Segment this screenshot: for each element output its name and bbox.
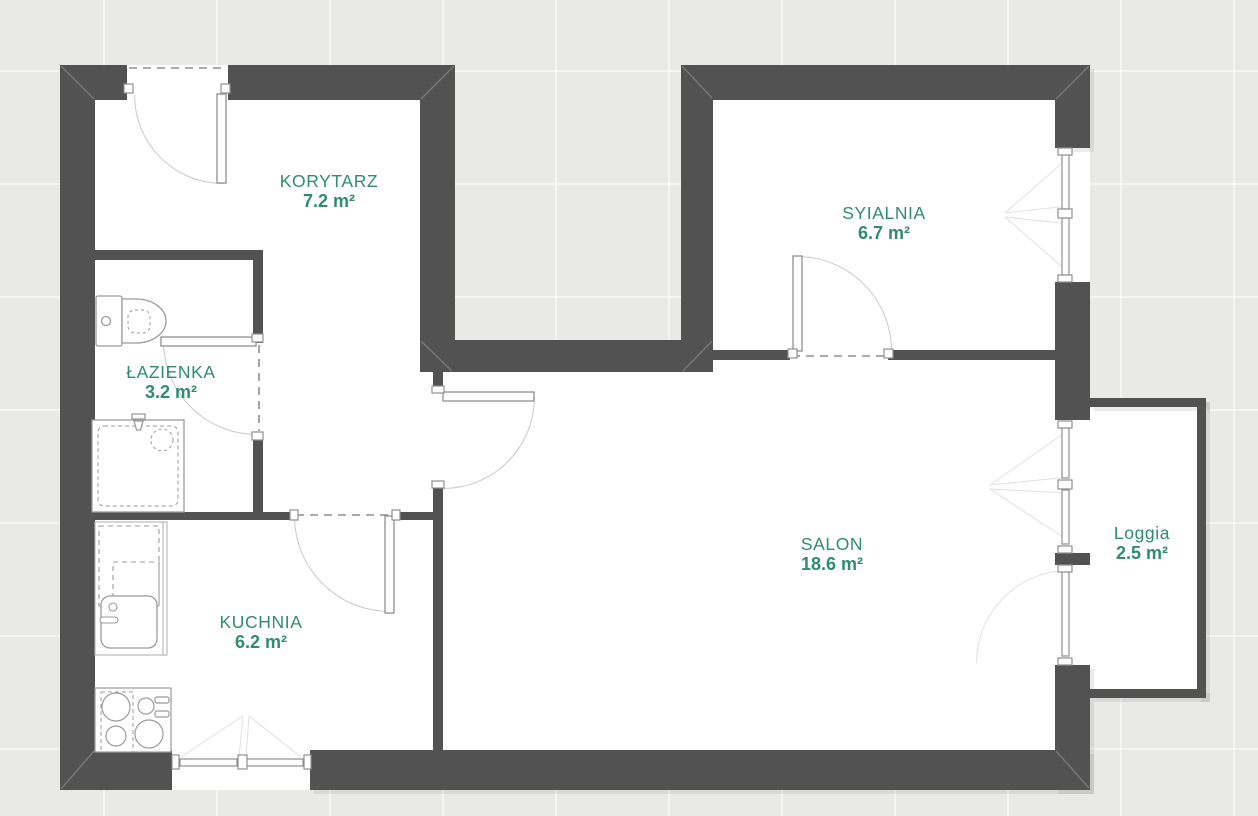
kitchen-window-casement-lines — [181, 716, 301, 757]
room-name: ŁAZIENKA — [126, 362, 215, 382]
room-label-lazienka: ŁAZIENKA 3.2 m² — [126, 362, 215, 402]
bedroom-door-leaf — [793, 256, 802, 351]
bathroom-door-leaf — [161, 337, 256, 346]
shower-icon — [92, 414, 184, 512]
room-name: SYIALNIA — [842, 203, 926, 223]
salon-window — [990, 421, 1072, 553]
room-label-korytarz: KORYTARZ 7.2 m² — [280, 171, 378, 211]
stove-icon — [95, 688, 171, 752]
room-name: KUCHNIA — [220, 612, 303, 632]
door-stops — [124, 84, 893, 520]
room-area: 6.2 m² — [220, 632, 303, 652]
room-label-salon: SALON 18.6 m² — [801, 534, 863, 574]
toilet-icon — [96, 296, 166, 346]
kitchen-counter — [95, 522, 167, 655]
room-label-loggia: Loggia 2.5 m² — [1114, 523, 1170, 563]
room-area: 7.2 m² — [280, 191, 378, 211]
salon-door-leaf — [443, 392, 534, 401]
bedroom-window — [1005, 148, 1072, 282]
door-leaves — [161, 94, 802, 613]
room-name: KORYTARZ — [280, 171, 378, 191]
entrance-door-leaf — [217, 94, 226, 183]
floor-plan: KORYTARZ 7.2 m² SYIALNIA 6.7 m² ŁAZIENKA… — [0, 0, 1258, 816]
room-area: 2.5 m² — [1114, 543, 1170, 563]
kitchen-sink-icon — [100, 596, 157, 648]
plan-detail-overlay — [0, 0, 1258, 816]
room-area: 18.6 m² — [801, 554, 863, 574]
room-label-kuchnia: KUCHNIA 6.2 m² — [220, 612, 303, 652]
room-name: Loggia — [1114, 523, 1170, 543]
door-opening-dashes — [129, 68, 886, 515]
room-area: 3.2 m² — [126, 382, 215, 402]
balcony-door-window — [1058, 565, 1072, 665]
room-name: SALON — [801, 534, 863, 554]
salon-window-casement-lines — [990, 430, 1069, 541]
kitchen-window — [172, 716, 311, 769]
room-label-sypialnia: SYIALNIA 6.7 m² — [842, 203, 926, 243]
kitchen-door-leaf — [385, 516, 394, 613]
wall-miter-lines — [61, 66, 1089, 789]
room-area: 6.7 m² — [842, 223, 926, 243]
